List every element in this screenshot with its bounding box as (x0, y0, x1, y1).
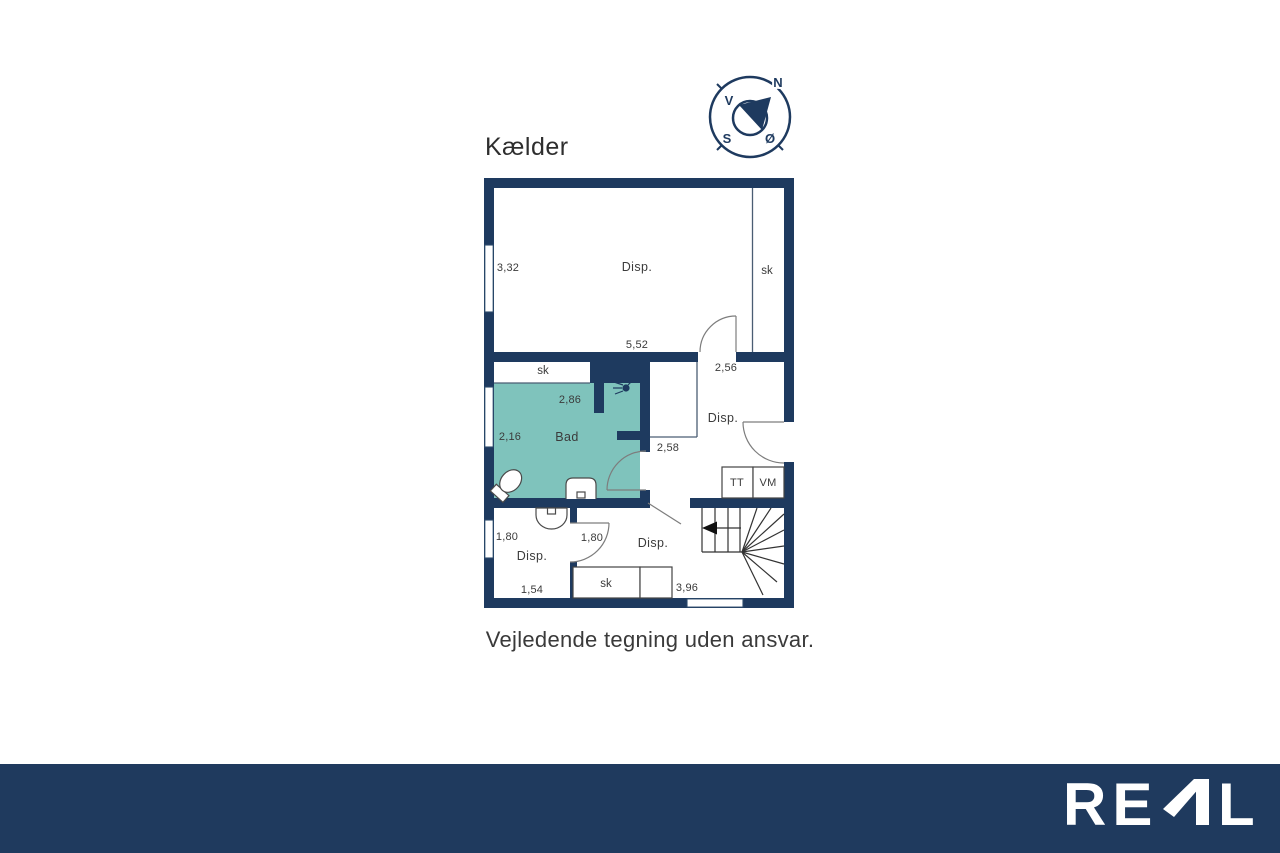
logo-text-l: L (1218, 778, 1255, 828)
washer-label: VM (759, 477, 776, 489)
dim-top-width: 5,52 (626, 339, 648, 351)
compass-letter-west: V (725, 93, 734, 108)
logo-text-re: RE (1063, 778, 1158, 828)
dim-left-top: 3,32 (497, 262, 519, 274)
floorplan-page: Kælder N V S Ø (0, 0, 1280, 853)
room-label-disp-top: Disp. (622, 260, 652, 274)
room-label-disp-bottom: Disp. (638, 536, 668, 550)
dim-bath-width: 2,86 (559, 394, 581, 406)
compass-rose: N V S Ø (703, 70, 797, 164)
compass-letter-north: N (773, 75, 782, 90)
plan-labels: 3,32 Disp. sk 5,52 2,56 sk 2,86 2,16 Bad… (484, 178, 794, 608)
closet-label-mid: sk (537, 365, 549, 377)
dim-bath-height: 2,16 (499, 431, 521, 443)
footer-bar: RE L (0, 764, 1280, 853)
real-logo: RE L (1063, 778, 1255, 828)
dim-bottom-width: 3,96 (676, 582, 698, 594)
floor-plan: 3,32 Disp. sk 5,52 2,56 sk 2,86 2,16 Bad… (484, 178, 794, 608)
closet-label-bottom: sk (600, 578, 612, 590)
disclaimer-text: Vejledende tegning uden ansvar. (486, 627, 815, 653)
room-label-disp-lowerleft: Disp. (517, 549, 547, 563)
floor-title: Kælder (485, 133, 569, 162)
dim-lowerleft-width: 1,80 (496, 531, 518, 543)
compass-letter-east: Ø (765, 131, 775, 146)
dim-lowermid-width: 1,80 (581, 532, 603, 544)
room-label-disp-right: Disp. (708, 411, 738, 425)
dim-lowerleft-height: 1,54 (521, 584, 543, 596)
closet-label-top: sk (761, 265, 773, 277)
room-label-bad: Bad (555, 430, 578, 444)
dryer-label: TT (730, 477, 744, 489)
dim-hall-width: 2,58 (657, 442, 679, 454)
compass-letter-south: S (723, 131, 732, 146)
dim-hall-top: 2,56 (715, 362, 737, 374)
